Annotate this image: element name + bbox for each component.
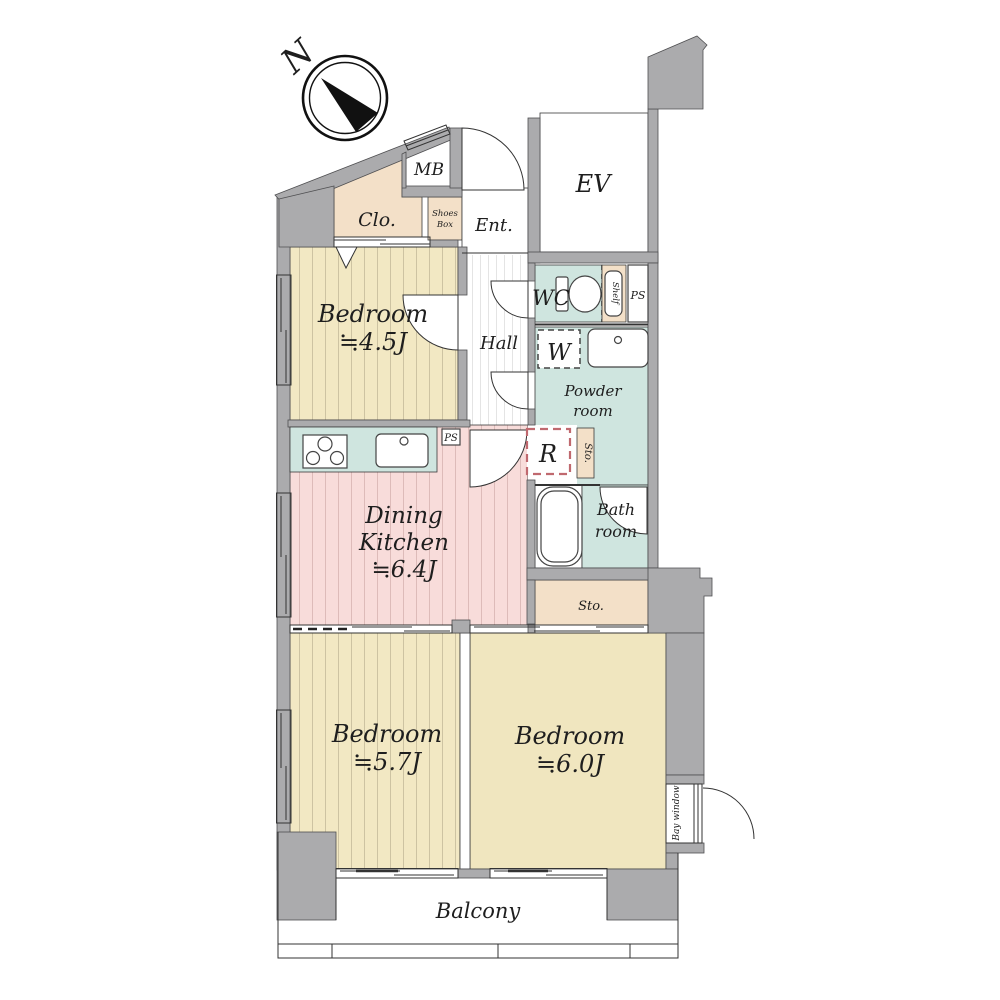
wall-mb-left bbox=[402, 152, 406, 188]
wall-ev-right bbox=[648, 109, 658, 263]
floor-plan: N Clo. MB Shoes Box Ent. EV Bedroom ≒4.5… bbox=[0, 0, 1000, 1000]
wall-hall-right-c bbox=[528, 409, 535, 425]
closet-sliding-doors bbox=[334, 237, 430, 247]
bath-label-2: room bbox=[595, 522, 637, 541]
partition-dk-bed60 bbox=[470, 625, 648, 633]
wall-pillar-partition bbox=[452, 620, 470, 633]
wall-ev-left bbox=[528, 118, 540, 263]
wall-left bbox=[277, 197, 290, 870]
meter-box-label: MB bbox=[413, 160, 444, 180]
wall-ent-left bbox=[450, 128, 462, 188]
shoes-box-label-1: Shoes bbox=[432, 209, 458, 219]
refrigerator-label: R bbox=[538, 440, 557, 468]
washer-label: W bbox=[547, 340, 573, 366]
elevator-label: EV bbox=[575, 170, 614, 198]
powder-label-2: room bbox=[573, 402, 612, 420]
ps-kitchen-label: PS bbox=[443, 433, 458, 444]
closet-label: Clo. bbox=[358, 209, 396, 231]
window-balcony-1 bbox=[336, 869, 458, 879]
bedroom-60-label: Bedroom bbox=[514, 722, 625, 750]
wall-bed45-kitchen bbox=[288, 420, 470, 427]
wall-right-column bbox=[648, 263, 658, 568]
bay-window-label: Bay window bbox=[672, 785, 682, 841]
bedroom-45-area: ≒4.5J bbox=[339, 328, 408, 356]
wall-pillar-bottom-mid bbox=[458, 869, 490, 878]
wall-bed45-hall-a bbox=[458, 247, 467, 295]
bedroom-60-area: ≒6.0J bbox=[536, 750, 605, 778]
wall-hall-right-a bbox=[528, 263, 535, 281]
dk-label-2: Kitchen bbox=[358, 530, 449, 556]
wall-bath-left bbox=[527, 480, 535, 580]
powder-sink-icon bbox=[588, 329, 648, 367]
dk-area: ≒6.4J bbox=[371, 557, 438, 583]
wall-hall-right-b bbox=[528, 318, 535, 372]
balcony-label: Balcony bbox=[435, 899, 522, 923]
wall-block-bottomleft bbox=[277, 832, 336, 920]
wall-bed60-right bbox=[666, 633, 704, 775]
wall-bay-bottom bbox=[666, 843, 704, 853]
bedroom-57-area: ≒5.7J bbox=[353, 748, 422, 776]
wall-ev-bottom bbox=[528, 252, 658, 263]
window-balcony-2 bbox=[490, 869, 607, 879]
storage-label: Sto. bbox=[578, 599, 604, 614]
powder-label-1: Powder bbox=[563, 382, 622, 400]
dk-label-1: Dining bbox=[364, 503, 443, 529]
wall-bed45-hall-b bbox=[458, 350, 467, 420]
inter-bedroom-wall bbox=[460, 633, 470, 869]
bedroom-45-label: Bedroom bbox=[317, 300, 428, 328]
compass-icon: N bbox=[273, 31, 387, 140]
wall-bath-bottom bbox=[527, 568, 658, 580]
partition-dk-bed57 bbox=[290, 625, 452, 633]
floor-plan-svg: N Clo. MB Shoes Box Ent. EV Bedroom ≒4.5… bbox=[0, 0, 1000, 1000]
bay-casement-arc bbox=[703, 788, 754, 839]
wc-label: WC bbox=[532, 286, 570, 310]
wall-parapet-topright bbox=[648, 36, 707, 109]
shoes-box-label-2: Box bbox=[436, 220, 453, 230]
kitchen-counter bbox=[290, 427, 437, 472]
wall-bay-top bbox=[666, 775, 704, 784]
storage-small-label: Sto. bbox=[582, 443, 593, 463]
wall-closet-band-right bbox=[430, 240, 458, 247]
shelf-label: Shelf bbox=[610, 282, 620, 306]
hall-label: Hall bbox=[479, 333, 518, 354]
ps-upper-label: PS bbox=[630, 289, 646, 302]
bath-label-1: Bath bbox=[596, 500, 635, 519]
wall-right-step bbox=[648, 568, 712, 633]
bathtub-icon bbox=[537, 487, 582, 566]
balcony-rail-dividers bbox=[332, 944, 630, 958]
wall-block-bottomright bbox=[607, 869, 678, 920]
door-entrance bbox=[462, 128, 524, 190]
wall-sto-left bbox=[527, 580, 535, 625]
bedroom-57-label: Bedroom bbox=[331, 720, 442, 748]
entrance-label: Ent. bbox=[474, 215, 513, 236]
wall-below-bay bbox=[666, 853, 678, 869]
